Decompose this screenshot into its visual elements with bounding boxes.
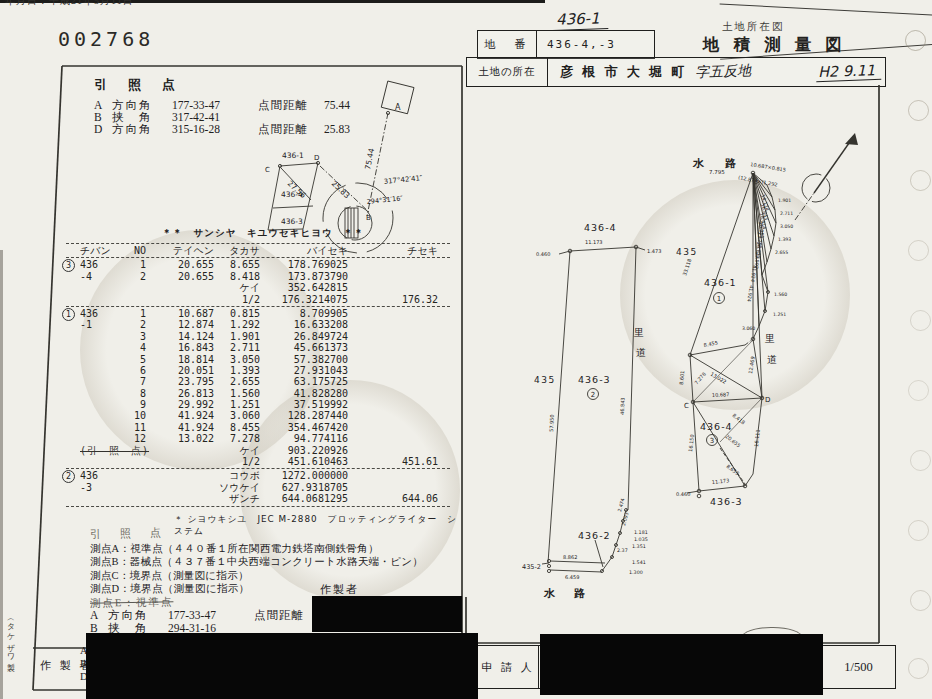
- map-label-16150: 16.150: [687, 434, 695, 452]
- cell: 26.813: [146, 388, 214, 399]
- cell: 2.655: [214, 376, 260, 387]
- table-title: ＊＊ サンシヤ キユウセキヒヨウ ＊＊: [162, 227, 364, 240]
- table-row: -1212.8741.29216.633208: [66, 319, 450, 330]
- cell: [348, 410, 438, 421]
- map-label-road-ri-2: 里: [765, 333, 775, 344]
- cell: 8.418: [214, 271, 260, 282]
- ref-pt: A: [90, 609, 108, 622]
- col-no: NO: [112, 245, 146, 256]
- cell: 4: [112, 342, 146, 353]
- paper-maker-mark: （タケザワ製）: [4, 616, 15, 692]
- map-label-46843: 46.843: [619, 397, 626, 415]
- map-label-8418: 8.418: [731, 412, 746, 426]
- cell: 178.769025: [260, 259, 348, 270]
- cell: 10.687: [146, 308, 214, 319]
- cell: 1.560: [214, 388, 260, 399]
- map-label-3050: 3.050: [780, 224, 793, 229]
- map-label-fan1: 10.687×0.815: [750, 161, 786, 173]
- cell: [348, 319, 438, 330]
- map-label-1181: 1.181: [634, 530, 648, 535]
- cell: [66, 422, 112, 433]
- ref-dist-label: 点間距離: [254, 609, 320, 622]
- ref-pt: D: [94, 123, 112, 135]
- map-label-0460-right: 0.460: [676, 491, 690, 497]
- table-row: 436110.6870.8158.709905: [66, 308, 450, 319]
- cell: 27.931043: [260, 365, 348, 376]
- cell: 6: [112, 365, 146, 376]
- map-point-d: D: [765, 396, 770, 404]
- table-row: 1213.0227.27894.774116: [66, 433, 450, 444]
- printer-footnote: ＊ シヨウキシユ JEC M-2880 プロッティングライター システム: [174, 514, 462, 538]
- calc-table: チバンNOテイヘンタカサバイセキチセキ 3 436120.6558.655178…: [66, 242, 450, 508]
- cell: 2.711: [214, 342, 260, 353]
- binder-hole: [910, 590, 931, 611]
- cell: 644.0681295: [260, 493, 348, 504]
- station-note-b: 測点B：器械点（４３７番１中央西端コンクリート水路天端・ピン）: [90, 555, 423, 568]
- cell: 16.843: [146, 342, 214, 353]
- binder-hole: [908, 658, 929, 679]
- ref-angle: 177-33-47: [168, 609, 254, 622]
- map-point-c: C: [684, 402, 689, 410]
- inset-angle-1: 317°42′41″: [383, 174, 423, 186]
- table-row: 826.8131.56041.828280: [66, 388, 450, 399]
- binder-hole: [905, 30, 926, 51]
- cell: [66, 331, 112, 342]
- map-label-2655: 2.655: [775, 250, 788, 255]
- table-row: 518.8143.05057.382700: [66, 354, 450, 365]
- table-row: 929.9921.25137.519992: [66, 399, 450, 410]
- map-mark-circle-3: 3: [710, 437, 714, 445]
- table-row: 436120.6558.655178.769025: [66, 259, 450, 270]
- cell: 352.642815: [260, 282, 348, 293]
- cell: 23.795: [146, 376, 214, 387]
- cell: 8.655: [214, 259, 260, 270]
- cell: 2: [112, 271, 146, 282]
- cell: [112, 493, 146, 504]
- map-label-1035: 1.035: [634, 537, 648, 542]
- binder-hole: [908, 100, 929, 121]
- binder-hole: [910, 310, 931, 331]
- table-row: 314.1241.90126.849724: [66, 331, 450, 342]
- cell: ケイ: [214, 282, 260, 293]
- cell: 13.022: [146, 433, 214, 444]
- cell: ソウケイ: [214, 482, 260, 493]
- cell: 7.278: [214, 433, 260, 444]
- scale-value: 1/500: [844, 660, 872, 675]
- map-label-parcel-436-1: 436-1: [704, 277, 737, 288]
- map-label-8455: 8.455: [703, 340, 718, 348]
- cell: 1272.000000: [260, 470, 348, 481]
- ref-kind: 方向角: [112, 123, 172, 135]
- cell: 903.220926: [260, 445, 348, 456]
- map-label-1901: 1.901: [778, 198, 791, 203]
- map-label-parcel-436-4-top: 436-4: [584, 222, 617, 233]
- section-mark-1: 1: [62, 308, 75, 321]
- table-row: 620.0511.39327.931043: [66, 365, 450, 376]
- map-label-435-right: 435: [676, 247, 698, 257]
- map-label-1560: 1.560: [774, 292, 787, 297]
- creator-label: 作製者: [320, 582, 359, 597]
- cell: 354.467420: [260, 422, 348, 433]
- cell: [66, 433, 112, 444]
- map-label-1393: 1.393: [778, 237, 791, 242]
- cell: 451.61: [348, 456, 438, 467]
- map-label-435-left: 435: [534, 375, 556, 385]
- cell: 8: [112, 388, 146, 399]
- cell: 0.815: [214, 308, 260, 319]
- cell: [66, 354, 112, 365]
- cell: 2: [112, 319, 146, 330]
- map-label-parcel-435-2: 435-2: [522, 563, 541, 571]
- cell: [66, 365, 112, 376]
- table-row: ケイ352.642815: [66, 282, 450, 293]
- cell: [348, 376, 438, 387]
- cell: [348, 331, 438, 342]
- cell: [348, 282, 438, 293]
- cell: [348, 482, 438, 493]
- table-row: 723.7952.65563.175725: [66, 376, 450, 387]
- binder-hole: [910, 170, 931, 191]
- cell: 1.251: [214, 399, 260, 410]
- table-row: -4220.6558.418173.873790: [66, 271, 450, 282]
- cell: 94.774116: [260, 433, 348, 444]
- ref-kind: 挟 角: [112, 111, 172, 123]
- cell: 1/2: [214, 294, 260, 305]
- cell: 11: [112, 422, 146, 433]
- map-label-road-ri: 里: [634, 327, 644, 338]
- cell: 644.06: [348, 493, 438, 504]
- ref-pt: B: [94, 111, 112, 123]
- cell: [348, 445, 438, 456]
- cell: -4: [66, 271, 112, 282]
- table-section-436-3: 2 436コウボ1272.000000 -3ソウケイ627.9318705 ザン…: [66, 470, 450, 504]
- inset-dist-25-83: 25.83: [330, 179, 352, 200]
- cell: [66, 493, 112, 504]
- table-row: -3ソウケイ627.9318705: [66, 482, 450, 493]
- cell: 37.519992: [260, 399, 348, 410]
- map-label-parcel-436-3-right: 436-3: [710, 496, 743, 507]
- cell: 451.610463: [260, 456, 348, 467]
- map-label-7795: 7.795: [709, 169, 725, 175]
- cell: 41.924: [146, 410, 214, 421]
- map-label-237: 2.37: [617, 548, 628, 553]
- cell: 20.051: [146, 365, 214, 376]
- scanned-survey-document: 年月日：平成21年5月11日 002768 436-1 地 番 436-4,-3…: [0, 0, 932, 699]
- cell: コウボ: [214, 470, 260, 481]
- ref-kind: 方向角: [108, 609, 168, 622]
- cell: 45.661373: [260, 342, 348, 353]
- table-section-436-4: 3 436120.6558.655178.769025 -4220.6558.4…: [66, 259, 450, 305]
- map-label-2711: 2.711: [780, 211, 793, 216]
- cell: -3: [66, 482, 112, 493]
- cell: 3: [112, 331, 146, 342]
- cell: [348, 399, 438, 410]
- cell: [112, 282, 146, 293]
- map-label-1473: 1.473: [647, 248, 661, 254]
- cell: 41.924: [146, 422, 214, 433]
- cell: 3.050: [214, 354, 260, 365]
- binder-hole: [908, 380, 929, 401]
- map-label-7278: 7.278: [693, 371, 707, 386]
- inset-point-c: C: [265, 166, 270, 174]
- map-label-8601: 8.601: [678, 370, 685, 385]
- reference-points-subheading: 引 照 点: [90, 525, 165, 541]
- map-label-16111: 16.111: [753, 429, 761, 447]
- inset-parcel-436-3: 436-3: [281, 217, 303, 226]
- map-label-11173-right: 11.173: [711, 477, 729, 485]
- cell: [348, 259, 438, 270]
- redaction-applicant: [540, 634, 823, 695]
- map-label-road-michi: 道: [636, 347, 646, 358]
- cell: 173.873790: [260, 271, 348, 282]
- cell: [348, 388, 438, 399]
- map-label-2093: 2.093: [621, 512, 629, 527]
- map-label-6459: 6.459: [565, 574, 579, 580]
- map-label-0460: 0.460: [536, 251, 550, 257]
- map-label-20655: 20.655: [724, 433, 741, 449]
- cell: 1.292: [214, 319, 260, 330]
- cell: 20.655: [146, 271, 214, 282]
- cell: 7: [112, 376, 146, 387]
- col-chiban: チバン: [66, 245, 112, 256]
- map-label-8655: 8.655: [725, 463, 740, 476]
- cell: 63.175725: [260, 376, 348, 387]
- map-label-13022: 13.022: [709, 371, 727, 385]
- map-label-1300: 1.300: [629, 570, 643, 575]
- station-note-a: 測点A：視準点（４４０番１所在関西電力鉄塔南側鉄骨角）: [90, 542, 423, 555]
- cell: [146, 282, 214, 293]
- inset-point-b: B: [366, 214, 371, 222]
- redaction-creator-details: [86, 633, 478, 699]
- map-label-10687: 10.687: [712, 391, 730, 398]
- map-label-1251: 1.251: [773, 312, 786, 317]
- cell: 176.3214075: [260, 294, 348, 305]
- cell: [348, 342, 438, 353]
- cell: 627.9318705: [260, 482, 348, 493]
- applicant-label: 申 請 人: [481, 660, 535, 675]
- inset-parcel-436-1: 436-1: [282, 151, 304, 160]
- col-takasa: タカサ: [214, 245, 260, 256]
- cell: 1: [112, 308, 146, 319]
- map-label-33118: 33.118: [681, 258, 692, 276]
- cell: 1: [112, 259, 146, 270]
- map-label-3060: 3.060: [742, 326, 755, 331]
- cell: ザンチ: [214, 493, 260, 504]
- cell: 18.814: [146, 354, 214, 365]
- cell: 14.124: [146, 331, 214, 342]
- cell: [146, 445, 214, 456]
- cell: 12: [112, 433, 146, 444]
- scale-box: 1/500: [821, 645, 896, 689]
- cell: [348, 422, 438, 433]
- reference-points-heading: 引 照 点: [94, 76, 179, 94]
- cell: [348, 271, 438, 282]
- table-row: ザンチ644.0681295644.06: [66, 493, 450, 504]
- map-label-parcel-436-2: 436-2: [578, 530, 611, 541]
- table-row: 1/2176.3214075176.32: [66, 294, 450, 305]
- map-label-1351: 1.351: [632, 544, 646, 549]
- station-note-d: 測点D：境界点（測量図に指示）: [90, 582, 423, 595]
- cell: ケイ: [214, 445, 260, 456]
- survey-map: 436-4 11.173 0.460 1.473 435 57.950 46.8…: [462, 80, 932, 643]
- cell: [112, 294, 146, 305]
- binder-hole: [908, 240, 929, 261]
- cell: [146, 470, 214, 481]
- inset-point-d: D: [314, 154, 319, 162]
- cell: 1/2: [214, 456, 260, 467]
- cell: [146, 482, 214, 493]
- cell: 26.849724: [260, 331, 348, 342]
- cell: 176.32: [348, 294, 438, 305]
- station-notes: 測点A：視準点（４４０番１所在関西電力鉄塔南側鉄骨角） 測点B：器械点（４３７番…: [90, 542, 423, 595]
- cell: 16.633208: [260, 319, 348, 330]
- col-teihen: テイヘン: [146, 245, 214, 256]
- table-header-row: チバンNOテイヘンタカサバイセキチセキ: [66, 245, 450, 256]
- col-baiseki: バイセキ: [260, 245, 348, 256]
- inset-point-a: A: [395, 103, 401, 112]
- map-label-12469: 12.469: [747, 356, 756, 374]
- cell: [146, 294, 214, 305]
- map-label-1541: 1.541: [632, 560, 646, 565]
- cell: [348, 433, 438, 444]
- cell: [66, 410, 112, 421]
- map-label-8862: 8.862: [563, 554, 577, 560]
- cell: [66, 282, 112, 293]
- cell: [348, 308, 438, 319]
- inset-angle-2: 294°31′16″: [366, 194, 403, 206]
- cell: 1.901: [214, 331, 260, 342]
- map-label-parcel-436-4: 436-4: [700, 421, 733, 432]
- applicant-box: 申 請 人: [477, 645, 539, 689]
- cell: -1: [66, 319, 112, 330]
- cell: [348, 365, 438, 376]
- cell: 29.992: [146, 399, 214, 410]
- cell: [112, 470, 146, 481]
- cell: 20.655: [146, 259, 214, 270]
- binder-hole: [910, 450, 931, 471]
- cell: [66, 342, 112, 353]
- cell: [348, 354, 438, 365]
- ref-kind: 方向角: [112, 99, 172, 111]
- cell: [112, 482, 146, 493]
- cell: 8.709905: [260, 308, 348, 319]
- cell: 41.828280: [260, 388, 348, 399]
- table-row: 1141.9248.455354.467420: [66, 422, 450, 433]
- cell: 12.874: [146, 319, 214, 330]
- map-mark-circle-1: 1: [717, 295, 721, 303]
- map-mark-circle-2: 2: [591, 391, 595, 399]
- ref-pt: A: [94, 99, 112, 111]
- station-note-c: 測点C：境界点（測量図に指示）: [90, 569, 423, 582]
- cell: 8.455: [214, 422, 260, 433]
- table-row: 1041.9243.060128.287440: [66, 410, 450, 421]
- cell: [66, 294, 112, 305]
- cell: 57.382700: [260, 354, 348, 365]
- map-label-11173: 11.173: [585, 239, 603, 245]
- map-label-parcel-436-3: 436-3: [578, 374, 611, 385]
- cell: 128.287440: [260, 410, 348, 421]
- cell: 5: [112, 354, 146, 365]
- col-chiseki: チセキ: [348, 245, 438, 256]
- table-section-436-1: 1 (引 照 点) 436110.6870.8158.709905 -1212.…: [66, 308, 450, 467]
- cell: 3.060: [214, 410, 260, 421]
- cell: [146, 493, 214, 504]
- cell: 10: [112, 410, 146, 421]
- inset-dist-75-44: 75.44: [363, 147, 376, 170]
- cell: [146, 456, 214, 467]
- map-label-57950: 57.950: [548, 414, 555, 432]
- struck-note: (引 照 点): [80, 444, 149, 458]
- map-label-41924-a: 41.924: [750, 265, 757, 282]
- cell: [348, 470, 438, 481]
- map-label-fan2: (12.874×(1.292: [738, 174, 778, 188]
- cell: [66, 388, 112, 399]
- cell: [66, 376, 112, 387]
- table-row: 436コウボ1272.000000: [66, 470, 450, 481]
- cell: [66, 399, 112, 410]
- cell: 9: [112, 399, 146, 410]
- cell: 1.393: [214, 365, 260, 376]
- binder-hole: [908, 520, 929, 541]
- table-row: 416.8432.71145.661373: [66, 342, 450, 353]
- redaction-creator-signature: [312, 596, 462, 632]
- map-label-waterway-center: 水 路: [543, 587, 589, 600]
- map-label-road-michi-2: 道: [767, 354, 777, 365]
